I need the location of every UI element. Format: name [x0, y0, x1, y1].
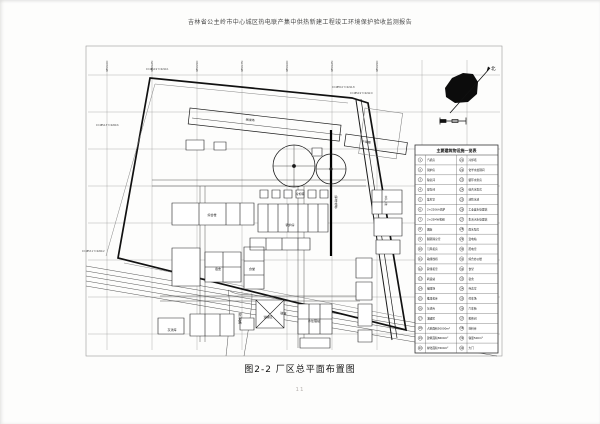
- legend-table: 主要建筑物设施一览表1汽机房21冷却塔2锅炉房22化学水处理间3除氧间23循环水…: [415, 145, 498, 353]
- svg-text:38: 38: [460, 327, 464, 330]
- svg-text:煤仓间: 煤仓间: [427, 188, 435, 192]
- svg-text:2×25MW机组: 2×25MW机组: [427, 217, 445, 221]
- svg-text:锅炉房: 锅炉房: [427, 168, 435, 172]
- svg-text:传达室: 传达室: [469, 287, 477, 291]
- svg-text:23: 23: [460, 179, 464, 182]
- svg-text:X=4854.3 Y=2209.6: X=4854.3 Y=2209.6: [96, 124, 119, 127]
- svg-text:36: 36: [460, 307, 464, 310]
- svg-text:29: 29: [460, 238, 464, 241]
- svg-text:配电室: 配电室: [469, 247, 477, 251]
- svg-text:20: 20: [419, 347, 423, 350]
- svg-text:储煤场: 储煤场: [245, 116, 255, 122]
- figure-caption: 图2-2 厂区总平面布置图: [0, 362, 600, 375]
- svg-text:循环水泵房: 循环水泵房: [469, 178, 483, 182]
- svg-text:灰渣库: 灰渣库: [167, 327, 176, 332]
- svg-text:21: 21: [460, 159, 464, 162]
- svg-text:11: 11: [419, 258, 423, 261]
- svg-text:16: 16: [419, 307, 423, 310]
- svg-text:2×220t/h锅炉: 2×220t/h锅炉: [427, 207, 445, 211]
- buildings: [158, 140, 402, 348]
- svg-text:X=4853.1 Y=2209.2: X=4853.1 Y=2209.2: [82, 250, 105, 253]
- svg-text:冷却塔: 冷却塔: [469, 158, 477, 162]
- report-page: 吉林省公主岭市中心城区热电联产集中供热新建工程竣工环境保护验收监测报告 4853…: [0, 0, 600, 424]
- svg-text:油罐区: 油罐区: [427, 316, 435, 320]
- svg-text:4854.50: 4854.50: [375, 61, 379, 72]
- svg-text:综合办公楼: 综合办公楼: [469, 257, 483, 261]
- svg-text:雨水泵房: 雨水泵房: [469, 227, 480, 231]
- svg-text:15: 15: [419, 297, 423, 300]
- north-arrow-icon: 北: [445, 65, 496, 113]
- svg-text:X=4854.9 Y=2212.0: X=4854.9 Y=2212.0: [350, 92, 373, 95]
- svg-text:25: 25: [460, 198, 464, 201]
- svg-text:储煤场: 储煤场: [427, 287, 435, 291]
- svg-text:食堂: 食堂: [469, 267, 475, 271]
- svg-text:33: 33: [460, 278, 464, 281]
- svg-text:北: 北: [491, 65, 496, 72]
- scale-bar: [440, 118, 466, 125]
- svg-text:绿化面积7600m²: 绿化面积7600m²: [427, 346, 448, 350]
- svg-text:14: 14: [419, 288, 423, 291]
- svg-text:宿舍: 宿舍: [215, 266, 221, 271]
- svg-text:变电站: 变电站: [469, 237, 477, 241]
- svg-text:检修间: 检修间: [469, 316, 477, 320]
- svg-text:26: 26: [460, 208, 464, 211]
- svg-text:建筑面积8600m²: 建筑面积8600m²: [427, 336, 448, 340]
- svg-text:大门: 大门: [469, 346, 475, 350]
- page-number: 11: [0, 387, 600, 393]
- svg-text:18: 18: [419, 327, 423, 330]
- svg-text:材料库: 材料库: [469, 326, 477, 330]
- svg-text:停车场: 停车场: [469, 297, 477, 301]
- svg-text:X=4855.0 Y=2211.8: X=4855.0 Y=2211.8: [332, 86, 355, 89]
- svg-text:28: 28: [460, 228, 464, 231]
- svg-text:32: 32: [460, 268, 464, 271]
- svg-text:主要建筑物设施一览表: 主要建筑物设施一览表: [437, 147, 477, 153]
- svg-text:容量500m³: 容量500m³: [469, 336, 483, 340]
- svg-text:消防水池: 消防水池: [469, 198, 480, 202]
- svg-text:碎煤机室: 碎煤机室: [427, 267, 438, 271]
- svg-text:4854.00: 4854.00: [285, 61, 289, 72]
- svg-text:X=4854.9 Y=2210.1: X=4854.9 Y=2210.1: [146, 68, 169, 71]
- svg-text:食堂: 食堂: [249, 266, 255, 271]
- svg-text:冷却塔: 冷却塔: [295, 191, 304, 196]
- svg-text:生活污水处理站: 生活污水处理站: [469, 217, 488, 221]
- svg-text:宿舍: 宿舍: [469, 277, 475, 281]
- svg-text:24: 24: [460, 189, 464, 192]
- site-plan-drawing: 4853.004853.254853.504853.754854.004854.…: [0, 0, 600, 424]
- svg-text:水处理站: 水处理站: [308, 318, 320, 323]
- svg-text:4854.25: 4854.25: [330, 61, 334, 72]
- svg-text:集控室: 集控室: [427, 198, 435, 202]
- svg-text:引风机房: 引风机房: [427, 247, 438, 251]
- svg-text:综合水泵房: 综合水泵房: [469, 188, 483, 192]
- svg-text:27: 27: [460, 218, 464, 221]
- svg-text:化学水处理间: 化学水处理间: [469, 168, 485, 172]
- svg-text:输煤栈桥: 输煤栈桥: [334, 194, 337, 209]
- svg-text:转运站: 转运站: [427, 277, 435, 281]
- svg-text:灰渣库: 灰渣库: [427, 306, 435, 310]
- svg-text:19: 19: [419, 337, 423, 340]
- svg-text:4853.00: 4853.00: [105, 61, 109, 72]
- svg-text:汽车衡: 汽车衡: [469, 306, 477, 310]
- svg-text:除氧间: 除氧间: [427, 178, 435, 182]
- svg-text:烟囱: 烟囱: [427, 227, 433, 231]
- svg-text:汽机房: 汽机房: [427, 158, 435, 162]
- svg-text:工业废水处理站: 工业废水处理站: [469, 207, 488, 211]
- svg-text:22: 22: [460, 169, 464, 172]
- svg-text:40: 40: [460, 347, 464, 350]
- svg-text:主厂房: 主厂房: [384, 194, 387, 206]
- svg-text:37: 37: [460, 317, 464, 320]
- svg-text:输煤栈桥: 输煤栈桥: [427, 257, 438, 261]
- svg-text:占地面积50000m²: 占地面积50000m²: [427, 326, 450, 330]
- svg-text:锅炉房: 锅炉房: [285, 222, 294, 227]
- circular-tanks: [273, 145, 346, 187]
- svg-text:30: 30: [460, 248, 464, 251]
- svg-text:推煤机库: 推煤机库: [427, 297, 438, 301]
- svg-text:35: 35: [460, 297, 464, 300]
- svg-text:4853.50: 4853.50: [195, 61, 199, 72]
- svg-text:油罐区: 油罐区: [263, 314, 272, 319]
- svg-text:脱硫除尘室: 脱硫除尘室: [427, 237, 441, 241]
- svg-text:10: 10: [419, 248, 423, 251]
- svg-text:31: 31: [460, 258, 464, 261]
- svg-text:17: 17: [419, 317, 423, 320]
- svg-text:34: 34: [460, 288, 464, 291]
- svg-text:39: 39: [460, 337, 464, 340]
- svg-text:13: 13: [419, 278, 423, 281]
- svg-text:4853.75: 4853.75: [240, 61, 244, 72]
- svg-text:12: 12: [419, 268, 423, 271]
- svg-text:综合楼: 综合楼: [207, 212, 216, 217]
